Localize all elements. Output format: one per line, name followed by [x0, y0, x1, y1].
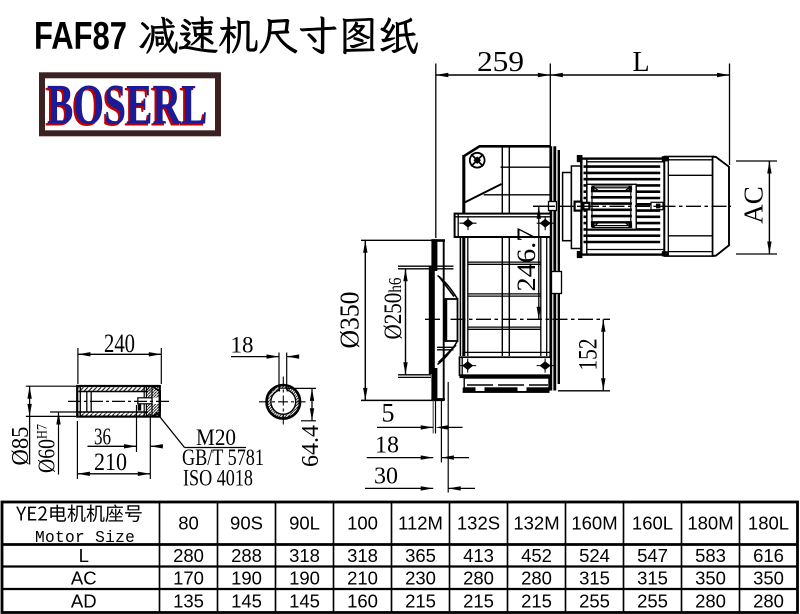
svg-text:L: L	[632, 47, 649, 78]
svg-text:280: 280	[521, 568, 552, 589]
svg-text:240: 240	[104, 329, 135, 358]
svg-text:180L: 180L	[748, 513, 789, 534]
svg-text:AD: AD	[71, 590, 97, 611]
svg-text:AC: AC	[71, 568, 97, 589]
svg-text:ISO 4018: ISO 4018	[183, 466, 253, 491]
svg-text:160L: 160L	[632, 513, 673, 534]
svg-text:288: 288	[231, 545, 262, 566]
svg-text:L: L	[79, 545, 89, 566]
svg-text:350: 350	[695, 568, 726, 589]
svg-text:18: 18	[375, 433, 399, 459]
svg-text:FAF87: FAF87	[34, 15, 127, 58]
svg-text:255: 255	[637, 590, 668, 611]
svg-text:152: 152	[574, 339, 603, 371]
svg-text:132M: 132M	[513, 513, 559, 534]
svg-text:36: 36	[94, 425, 111, 451]
svg-text:315: 315	[579, 568, 610, 589]
svg-text:280: 280	[695, 590, 726, 611]
svg-text:318: 318	[347, 545, 378, 566]
svg-text:BOSERL: BOSERL	[47, 74, 208, 137]
svg-text:413: 413	[463, 545, 494, 566]
svg-text:Ø350: Ø350	[335, 292, 365, 349]
svg-text:135: 135	[173, 590, 204, 611]
svg-text:160: 160	[347, 590, 378, 611]
svg-text:280: 280	[463, 568, 494, 589]
svg-text:90S: 90S	[230, 513, 263, 534]
svg-text:145: 145	[289, 590, 320, 611]
svg-text:Ø85: Ø85	[8, 427, 34, 466]
svg-text:Ø250h6: Ø250h6	[380, 278, 407, 340]
svg-text:112M: 112M	[398, 513, 443, 534]
svg-text:210: 210	[94, 449, 127, 476]
svg-text:215: 215	[405, 590, 436, 611]
svg-text:547: 547	[637, 545, 668, 566]
svg-text:190: 190	[289, 568, 320, 589]
svg-text:30: 30	[374, 464, 398, 490]
svg-text:180M: 180M	[687, 513, 733, 534]
svg-text:AC: AC	[739, 186, 769, 224]
svg-text:132S: 132S	[457, 513, 500, 534]
svg-text:100: 100	[347, 513, 378, 534]
svg-text:452: 452	[521, 545, 552, 566]
svg-text:190: 190	[231, 568, 262, 589]
svg-text:280: 280	[753, 590, 784, 611]
svg-text:350: 350	[753, 568, 784, 589]
svg-text:230: 230	[405, 568, 436, 589]
svg-text:215: 215	[521, 590, 552, 611]
svg-text:246.7: 246.7	[512, 228, 541, 292]
svg-text:64.4: 64.4	[298, 425, 324, 467]
svg-text:616: 616	[753, 545, 784, 566]
svg-text:255: 255	[579, 590, 610, 611]
svg-text:215: 215	[463, 590, 494, 611]
svg-text:5: 5	[382, 399, 395, 428]
svg-text:583: 583	[695, 545, 726, 566]
svg-text:80: 80	[178, 513, 199, 534]
svg-text:145: 145	[231, 590, 262, 611]
svg-text:315: 315	[637, 568, 668, 589]
svg-text:18: 18	[231, 333, 254, 358]
svg-text:280: 280	[173, 545, 204, 566]
svg-text:160M: 160M	[571, 513, 617, 534]
svg-text:Ø60H7: Ø60H7	[35, 424, 61, 473]
svg-text:524: 524	[579, 545, 610, 566]
svg-text:170: 170	[173, 568, 204, 589]
svg-text:90L: 90L	[289, 513, 320, 534]
svg-text:365: 365	[405, 545, 436, 566]
svg-text:259: 259	[477, 47, 524, 78]
svg-text:210: 210	[347, 568, 378, 589]
svg-text:318: 318	[289, 545, 320, 566]
